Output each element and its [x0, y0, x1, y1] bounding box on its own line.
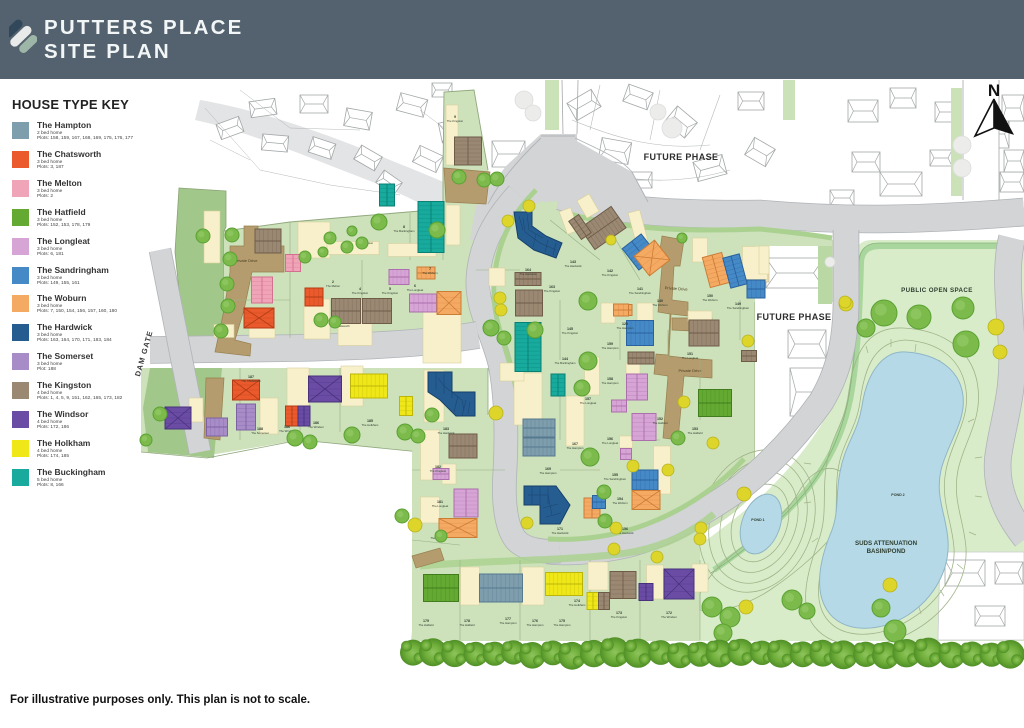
svg-text:The Hampton: The Hampton	[602, 346, 619, 350]
svg-text:N: N	[988, 81, 1000, 100]
svg-text:The Holkham: The Holkham	[362, 423, 379, 427]
svg-text:The Sandringham: The Sandringham	[604, 477, 627, 481]
svg-text:FUTURE PHASE: FUTURE PHASE	[757, 312, 832, 322]
svg-text:The Longleat: The Longleat	[602, 441, 619, 445]
svg-text:The Somerset: The Somerset	[251, 431, 269, 435]
svg-text:The Longleat: The Longleat	[432, 504, 449, 508]
svg-text:The Longleat: The Longleat	[580, 401, 597, 405]
svg-text:The Windsor: The Windsor	[661, 615, 677, 619]
svg-text:The Windsor: The Windsor	[308, 425, 324, 429]
svg-text:The Kingston: The Kingston	[382, 291, 399, 295]
svg-text:The Sandringham: The Sandringham	[727, 306, 750, 310]
svg-text:The Kingston: The Kingston	[611, 615, 628, 619]
svg-text:PUBLIC OPEN SPACE: PUBLIC OPEN SPACE	[901, 287, 973, 294]
svg-text:The Hampton: The Hampton	[617, 326, 634, 330]
svg-text:The Hampton: The Hampton	[527, 623, 544, 627]
svg-text:The Kingston: The Kingston	[430, 469, 447, 473]
svg-text:The Hatfield: The Hatfield	[652, 421, 668, 425]
svg-text:The Kingston: The Kingston	[544, 289, 561, 293]
svg-text:FUTURE PHASE: FUTURE PHASE	[644, 152, 719, 162]
svg-text:The Woburn: The Woburn	[702, 298, 718, 302]
svg-text:Private Drive: Private Drive	[679, 368, 703, 373]
svg-text:The Kingston: The Kingston	[352, 291, 369, 295]
svg-text:The Hampton: The Hampton	[602, 381, 619, 385]
svg-text:The Buckingham: The Buckingham	[394, 229, 416, 233]
svg-text:The Chatsworth: The Chatsworth	[241, 379, 261, 383]
svg-text:The Hardwick: The Hardwick	[519, 272, 537, 276]
svg-text:The Kingston: The Kingston	[562, 331, 579, 335]
svg-text:The Hardwick: The Hardwick	[437, 431, 455, 435]
svg-text:The Woburn: The Woburn	[652, 303, 668, 307]
svg-text:The Woburn: The Woburn	[422, 271, 438, 275]
svg-text:The Buckingham: The Buckingham	[555, 361, 577, 365]
svg-text:The Hatfield: The Hatfield	[459, 623, 475, 627]
svg-text:The Melton: The Melton	[326, 284, 340, 288]
svg-text:The Hardwick: The Hardwick	[551, 531, 569, 535]
svg-text:Private Drive: Private Drive	[235, 258, 259, 263]
svg-text:The Hampton: The Hampton	[554, 623, 571, 627]
svg-text:The Hardwick: The Hardwick	[564, 264, 582, 268]
svg-text:The Longleat: The Longleat	[407, 288, 424, 292]
svg-text:SUDS ATTENUATION: SUDS ATTENUATION	[855, 540, 918, 547]
svg-text:The Hampton: The Hampton	[540, 471, 557, 475]
svg-text:BASIN/POND: BASIN/POND	[867, 548, 906, 555]
svg-text:The Sandringham: The Sandringham	[629, 291, 652, 295]
svg-text:The Hampton: The Hampton	[567, 446, 584, 450]
svg-text:POND 1: POND 1	[751, 518, 764, 522]
svg-text:The Kingston: The Kingston	[602, 273, 619, 277]
svg-text:The Kingston: The Kingston	[447, 119, 464, 123]
svg-text:The Hatfield: The Hatfield	[687, 431, 703, 435]
svg-text:The Holkham: The Holkham	[569, 603, 586, 607]
svg-text:The Longleat: The Longleat	[682, 356, 699, 360]
svg-text:The Hatfield: The Hatfield	[418, 623, 434, 627]
svg-text:POND 2: POND 2	[891, 493, 904, 497]
svg-text:The Woburn: The Woburn	[612, 501, 628, 505]
svg-text:The Hampton: The Hampton	[500, 621, 517, 625]
